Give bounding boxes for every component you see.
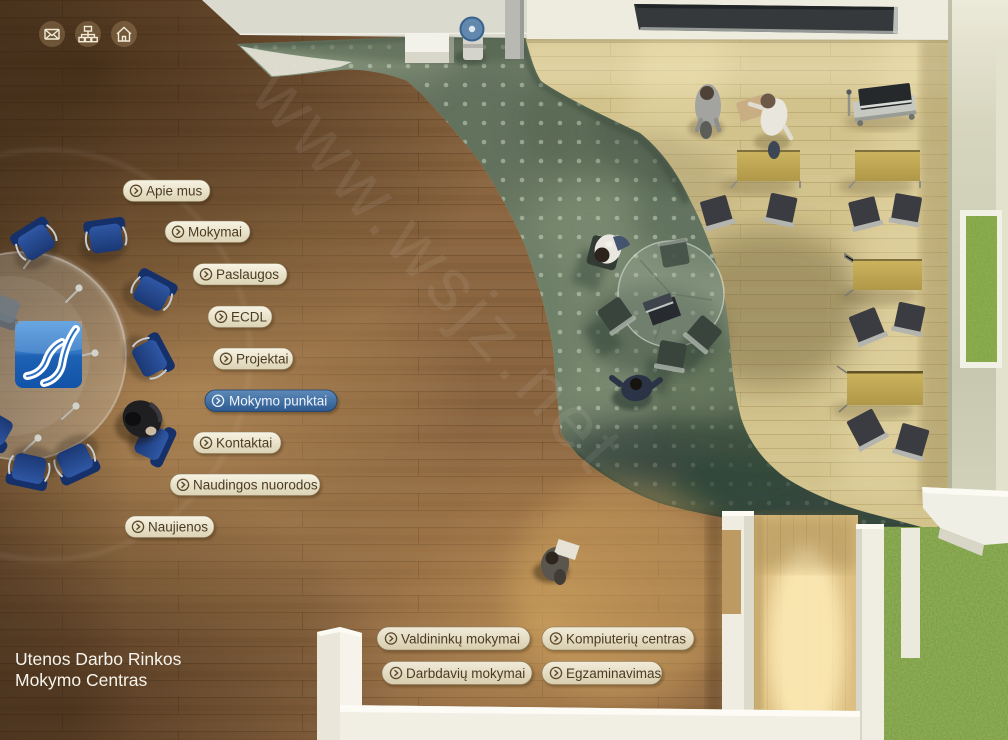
svg-text:Mokymai: Mokymai <box>188 225 242 240</box>
svg-text:Naudingos nuorodos: Naudingos nuorodos <box>193 478 318 493</box>
svg-text:Egzaminavimas: Egzaminavimas <box>566 666 662 681</box>
svg-text:Utenos Darbo Rinkos: Utenos Darbo Rinkos <box>15 649 182 669</box>
svg-text:Apie mus: Apie mus <box>146 184 203 199</box>
svg-text:Mokymo punktai: Mokymo punktai <box>229 394 327 409</box>
svg-text:Kontaktai: Kontaktai <box>216 436 272 451</box>
svg-text:Paslaugos: Paslaugos <box>216 267 279 282</box>
svg-text:Darbdavių mokymai: Darbdavių mokymai <box>406 666 525 681</box>
svg-text:Naujienos: Naujienos <box>148 520 208 535</box>
svg-text:Valdininkų mokymai: Valdininkų mokymai <box>401 631 520 646</box>
svg-text:Kompiuterių centras: Kompiuterių centras <box>566 631 686 646</box>
svg-text:Projektai: Projektai <box>236 352 289 367</box>
svg-text:Mokymo Centras: Mokymo Centras <box>15 670 148 690</box>
svg-text:ECDL: ECDL <box>231 310 268 325</box>
